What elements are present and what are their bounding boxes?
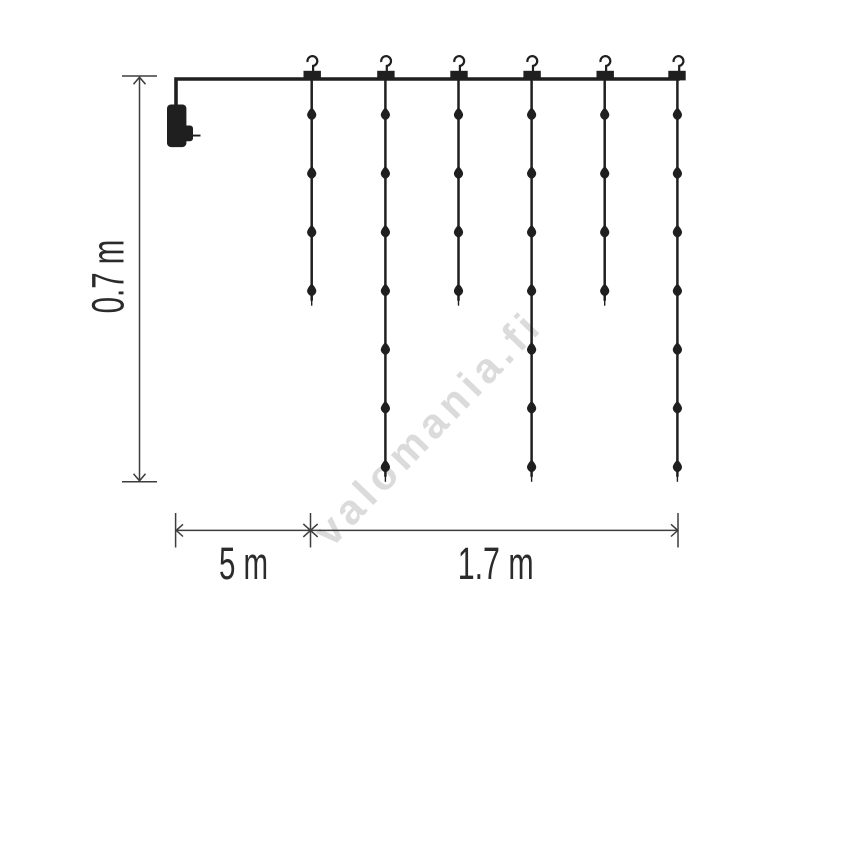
svg-text:valomania.fi: valomania.fi [304, 301, 551, 555]
svg-text:0.7 m: 0.7 m [84, 240, 134, 314]
svg-text:5 m: 5 m [219, 540, 268, 590]
svg-text:1.7 m: 1.7 m [458, 539, 534, 589]
